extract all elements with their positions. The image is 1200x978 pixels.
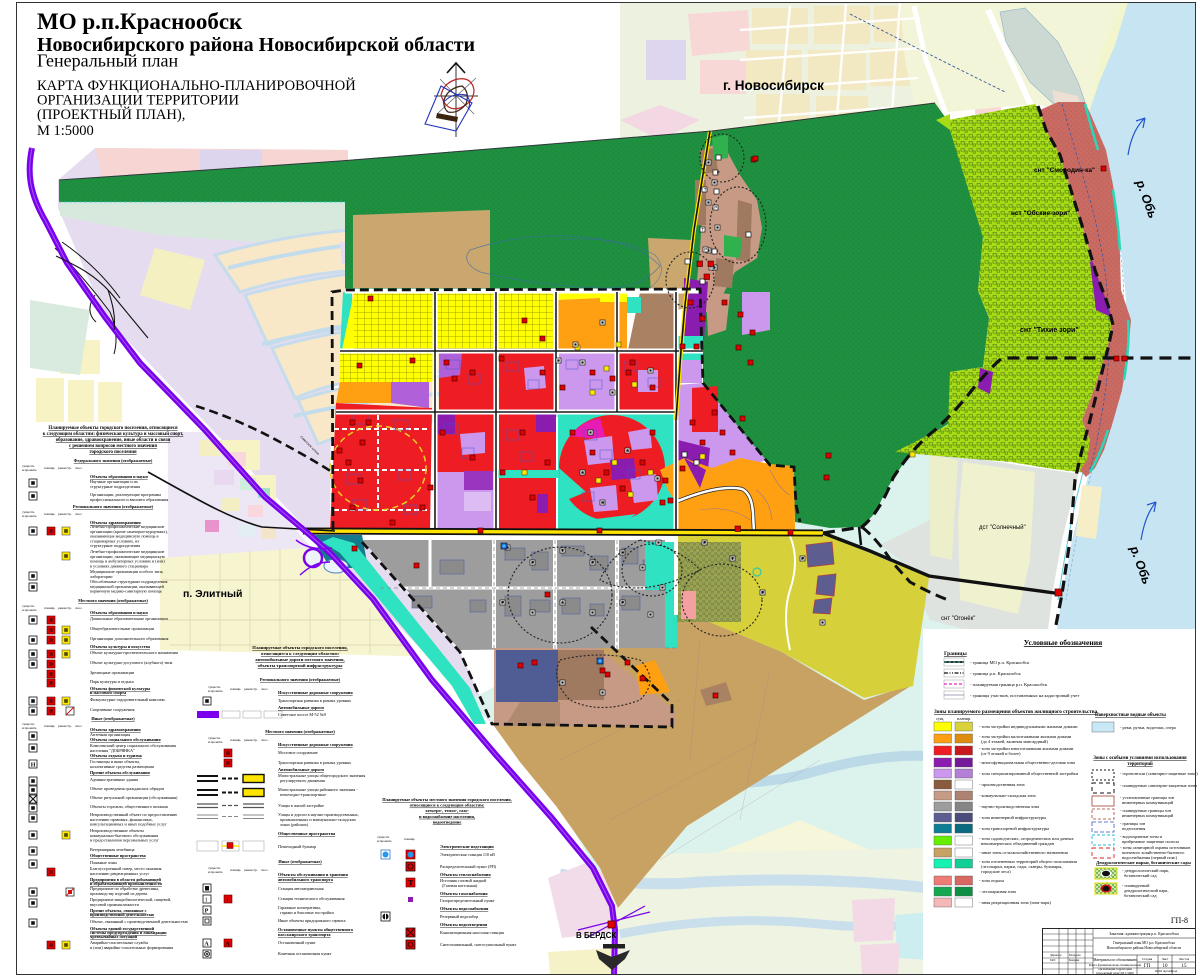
svg-text:Зоны планируемого размещения о: Зоны планируемого размещения объектов жи… xyxy=(934,708,1098,715)
svg-text:планир.: планир. xyxy=(44,512,55,516)
svg-text:снт "Огонёк": снт "Огонёк" xyxy=(941,616,975,622)
svg-text:Улицы в жилой застройке: Улицы в жилой застройке xyxy=(278,803,324,808)
svg-text:Объекты водоснабжения: Объекты водоснабжения xyxy=(440,906,489,911)
svg-text:Электрические подстанции: Электрические подстанции xyxy=(440,844,494,849)
svg-text:регулируемого движения: регулируемого движения xyxy=(280,778,325,783)
svg-text:Зоны с особыми условиями испол: Зоны с особыми условиями использования xyxy=(1093,756,1187,761)
svg-text:профессионального и высшего об: профессионального и высшего образования xyxy=(90,497,168,502)
svg-text:ботанический сад: ботанический сад xyxy=(1124,893,1157,898)
svg-text:А: А xyxy=(581,470,584,475)
svg-text:зонах (районах): зонах (районах) xyxy=(280,822,309,827)
svg-text:автомобильные дороги местного: автомобильные дороги местного значения, xyxy=(255,657,344,662)
svg-text:Объекты отдыха и туризма: Объекты отдыха и туризма xyxy=(90,753,143,758)
svg-text:М 1:5000: М 1:5000 xyxy=(37,123,94,139)
svg-text:снт "Смородин-ка": снт "Смородин-ка" xyxy=(1034,167,1095,174)
svg-text:15: 15 xyxy=(1182,964,1188,969)
svg-text:Искусственные дорожные сооруже: Искусственные дорожные сооружения xyxy=(278,690,353,695)
svg-text:Н: Н xyxy=(601,500,604,505)
svg-text:Станция технического обслужива: Станция технического обслуживания xyxy=(278,896,345,901)
svg-text:Р: Р xyxy=(621,600,624,605)
svg-text:Автомобильные дороги: Автомобильные дороги xyxy=(278,767,324,772)
svg-text:(от 9 этажей и более): (от 9 этажей и более) xyxy=(981,751,1021,756)
svg-text:- лесопарковая зона: - лесопарковая зона xyxy=(979,889,1016,894)
svg-text:Пешеходный бульвар: Пешеходный бульвар xyxy=(278,844,316,849)
svg-text:Объекты культуры и искусства: Объекты культуры и искусства xyxy=(90,644,151,649)
svg-text:Н: Н xyxy=(621,550,624,555)
svg-text:М: М xyxy=(710,265,714,270)
svg-text:объекты транспортной инфрастру: объекты транспортной инфраструктуры xyxy=(258,663,343,668)
svg-text:Канализационная насосная станц: Канализационная насосная станция xyxy=(440,930,504,935)
svg-text:и проектн.: и проектн. xyxy=(22,514,37,518)
svg-text:1: 1 xyxy=(205,898,208,904)
svg-text:Иные (отображаемые): Иные (отображаемые) xyxy=(91,716,135,721)
svg-text:прибрежные защитные полосы: прибрежные защитные полосы xyxy=(1122,839,1179,844)
svg-text:Генеральный план: Генеральный план xyxy=(37,51,178,71)
svg-text:КАРТА ФУНКЦИОНАЛЬНО-ПЛАНИРОВОЧ: КАРТА ФУНКЦИОНАЛЬНО-ПЛАНИРОВОЧНОЙ xyxy=(37,77,356,94)
svg-text:Конечная остановочная пункт: Конечная остановочная пункт xyxy=(278,951,332,956)
svg-text:ГП: ГП xyxy=(1144,964,1151,969)
svg-text:г. Новосибирск: г. Новосибирск xyxy=(723,78,824,93)
svg-text:пассажирского транспорта: пассажирского транспорта xyxy=(278,932,331,937)
svg-text:МО р.п.Краснообск: МО р.п.Краснообск xyxy=(37,9,243,34)
svg-text:- зона транспортной инфраструк: - зона транспортной инфраструктуры xyxy=(979,826,1049,831)
svg-text:H: H xyxy=(31,763,36,769)
svg-text:сущ.: сущ. xyxy=(936,716,944,721)
svg-text:Планируемые объекты местного з: Планируемые объекты местного значения го… xyxy=(382,797,512,802)
svg-text:территорий: территорий xyxy=(1127,762,1153,767)
svg-text:Объекты водоотведения: Объекты водоотведения xyxy=(440,922,488,927)
svg-text:структурные подразделения: структурные подразделения xyxy=(90,484,140,489)
svg-text:Р: Р xyxy=(501,600,504,605)
svg-text:чрезвычайных ситуаций: чрезвычайных ситуаций xyxy=(90,934,138,939)
svg-text:(Газовая котельная): (Газовая котельная) xyxy=(442,883,478,888)
svg-text:и проектн.: и проектн. xyxy=(22,468,37,472)
svg-text:снос.: снос. xyxy=(75,466,83,470)
svg-text:планир.: планир. xyxy=(230,868,241,872)
svg-text:- многофункциональная обществе: - многофункциональная общественно-делова… xyxy=(979,760,1075,765)
svg-text:Поверхностные водные объекты: Поверхностные водные объекты xyxy=(1095,713,1166,718)
svg-text:Прочие объекты обслуживания: Прочие объекты обслуживания xyxy=(90,770,150,775)
svg-text:Резервный водозабор: Резервный водозабор xyxy=(440,914,478,919)
svg-text:Иные объекты придорожного серв: Иные объекты придорожного сервиса xyxy=(278,918,346,923)
svg-text:образование, здравоохранение,: образование, здравоохранение, иные облас… xyxy=(56,438,171,443)
svg-text:Транспортная развязка в разных: Транспортная развязка в разных уровнях xyxy=(278,760,352,765)
svg-text:и проектн.: и проектн. xyxy=(208,870,223,874)
svg-text:A: A xyxy=(204,942,209,948)
svg-text:пешеходно-транспортные: пешеходно-транспортные xyxy=(280,792,326,797)
svg-text:снт "Тихие зори": снт "Тихие зори" xyxy=(1020,327,1079,334)
svg-text:к следующим областям: физическ: к следующим областям: физическая культур… xyxy=(43,432,184,437)
svg-text:Р: Р xyxy=(761,590,764,595)
svg-text:Планируемые объекты городског: Планируемые объекты городского поселения… xyxy=(48,426,178,431)
svg-text:Искусственные дорожные сооруже: Искусственные дорожные сооружения xyxy=(278,742,353,747)
svg-text:производству изделий из дерева: производству изделий из дерева xyxy=(90,891,147,896)
svg-text:А: А xyxy=(561,600,564,605)
svg-text:ГАП: ГАП xyxy=(1050,959,1055,962)
svg-text:Объект культурно-просветительс: Объект культурно-просветительского назна… xyxy=(90,650,178,655)
svg-text:- зона застройки индивидуальны: - зона застройки индивидуальными жилыми … xyxy=(979,724,1078,729)
svg-text:- зона отдыха: - зона отдыха xyxy=(979,878,1004,883)
svg-text:Генеральный план МО р.п. Красн: Генеральный план МО р.п. Краснообска xyxy=(1113,941,1175,945)
svg-text:1: 1 xyxy=(226,898,229,904)
svg-text:Бандман: Бандман xyxy=(1069,959,1080,962)
svg-text:Организации дополнительного об: Организации дополнительного образования xyxy=(90,636,168,641)
svg-text:- планируемые санитарно-защитн: - планируемые санитарно-защитные зоны xyxy=(1120,783,1197,788)
svg-text:и массового спорта: и массового спорта xyxy=(90,690,127,695)
svg-text:и водоснабжение населения,: и водоснабжение населения, xyxy=(419,814,475,819)
svg-text:Р: Р xyxy=(531,560,534,565)
svg-text:Станция автозаправочная: Станция автозаправочная xyxy=(278,886,324,891)
svg-text:Т: Т xyxy=(701,227,704,232)
svg-text:- научно-производственная зона: - научно-производственная зона xyxy=(979,804,1039,809)
svg-text:Т: Т xyxy=(704,187,707,192)
svg-text:Транспортная развязка в разных: Транспортная развязка в разных уровнях xyxy=(278,698,352,703)
svg-text:п. Элитный: п. Элитный xyxy=(183,588,242,600)
svg-text:Р: Р xyxy=(714,205,717,210)
svg-text:Федерального значения (отображ: Федерального значения (отображаемые) xyxy=(74,458,153,463)
svg-text:ГП-8: ГП-8 xyxy=(1171,916,1188,925)
svg-text:и (или) аварийно-спасательные: и (или) аварийно-спасательные формирован… xyxy=(90,945,173,950)
svg-text:Общеобразовательные организаци: Общеобразовательные организации xyxy=(90,626,155,631)
svg-text:Парк культуры и отдыха: Парк культуры и отдыха xyxy=(90,679,134,684)
svg-text:реконстр.: реконстр. xyxy=(244,868,258,872)
svg-text:- иные зоны сельскохозяйственн: - иные зоны сельскохозяйственного назнач… xyxy=(979,850,1068,855)
svg-text:В БЕРДСК: В БЕРДСК xyxy=(576,931,616,940)
svg-text:коллективные средства размещен: коллективные средства размещения xyxy=(90,764,154,769)
svg-text:Дошкольные образовательные орг: Дошкольные образовательные организации xyxy=(90,616,168,621)
svg-text:А: А xyxy=(626,448,629,453)
svg-text:и предоставления персональных: и предоставления персональных услуг xyxy=(90,838,159,843)
svg-text:городского поселения: городского поселения xyxy=(89,450,137,455)
svg-text:планир.: планир. xyxy=(44,724,55,728)
svg-text:- производственная зона: - производственная зона xyxy=(979,782,1025,787)
svg-text:некоммерческих объединений гра: некоммерческих объединений граждан xyxy=(981,841,1055,846)
svg-text:Директор: Директор xyxy=(1050,954,1062,957)
svg-text:Объекты образования и науки: Объекты образования и науки xyxy=(90,610,148,615)
svg-text:снос.: снос. xyxy=(75,724,83,728)
svg-text:Р: Р xyxy=(703,540,706,545)
svg-text:Иные (отображаемые): Иные (отображаемые) xyxy=(278,859,322,864)
svg-text:консультационных и иных подобн: консультационных и иных подобных услуг xyxy=(90,822,167,827)
svg-text:гаражи и боксовые постройки: гаражи и боксовые постройки xyxy=(280,910,334,915)
svg-text:Дендрологические парки, ботани: Дендрологические парки, ботанические сад… xyxy=(1096,860,1191,865)
svg-text:дст "Солнечный": дст "Солнечный" xyxy=(979,524,1026,531)
svg-text:планир.: планир. xyxy=(404,837,415,841)
svg-text:снос.: снос. xyxy=(75,606,83,610)
svg-text:планир.: планир. xyxy=(44,466,55,470)
svg-text:водоотведение: водоотведение xyxy=(433,819,462,824)
svg-text:Объект культурно-досугового (к: Объект культурно-досугового (клубного) т… xyxy=(90,660,173,665)
svg-text:- коммунально-складская зона: - коммунально-складская зона xyxy=(979,793,1036,798)
svg-text:Местного значения (отображаемы: Местного значения (отображаемые) xyxy=(78,598,148,603)
svg-text:Регионального значения (отобра: Регионального значения (отображаемые) xyxy=(260,677,341,682)
svg-text:в условиях дневного стационара: в условиях дневного стационара xyxy=(90,563,148,568)
svg-text:населению рекреационных услуг: населению рекреационных услуг xyxy=(90,871,149,876)
svg-text:Административные здания: Административные здания xyxy=(90,777,138,782)
svg-text:Объекты газоснабжения: Объекты газоснабжения xyxy=(440,891,488,896)
svg-text:нст "Обские-зори": нст "Обские-зори" xyxy=(1011,209,1070,217)
svg-text:и проектн.: и проектн. xyxy=(208,740,223,744)
svg-text:и проектн.: и проектн. xyxy=(22,726,37,730)
svg-text:Мостовое сооружение: Мостовое сооружение xyxy=(278,750,318,755)
svg-text:- зона специализированной обще: - зона специализированной общественной з… xyxy=(979,771,1079,776)
svg-text:автомобильного транспорта: автомобильного транспорта xyxy=(278,877,334,882)
svg-text:Листов: Листов xyxy=(1179,957,1190,961)
svg-text:Местного значения (отображаемы: Местного значения (отображаемые) xyxy=(265,729,335,734)
svg-text:городские леса): городские леса) xyxy=(981,869,1011,874)
svg-text:Общественные пространства: Общественные пространства xyxy=(90,853,147,858)
svg-text:Р: Р xyxy=(801,556,804,561)
svg-text:Физкультурно-оздоровительный к: Физкультурно-оздоровительный комплекс xyxy=(90,697,166,702)
svg-text:Распределительный пункт (РП): Распределительный пункт (РП) xyxy=(440,864,497,869)
svg-text:реконстр.: реконстр. xyxy=(58,724,72,728)
svg-text:структурные подразделения: структурные подразделения xyxy=(90,543,140,548)
svg-text:T: T xyxy=(408,879,413,887)
svg-text:Р: Р xyxy=(717,170,720,175)
svg-text:- горизонтали (санитарно-защит: - горизонтали (санитарно-защитные зоны) xyxy=(1120,771,1198,776)
svg-text:Электрическая станция 110 кВ: Электрическая станция 110 кВ xyxy=(440,852,495,857)
svg-text:снос.: снос. xyxy=(261,687,269,691)
svg-text:Зрелищные организации: Зрелищные организации xyxy=(90,670,135,675)
svg-text:Регионального значения (отобра: Регионального значения (отображаемые) xyxy=(73,504,154,509)
svg-text:Лист: Лист xyxy=(1161,957,1169,961)
svg-text:Автомобильные дороги: Автомобильные дороги xyxy=(278,705,324,710)
svg-text:P: P xyxy=(205,909,209,915)
svg-text:- граница МО р.п. Краснообск: - граница МО р.п. Краснообск xyxy=(970,660,1030,665)
svg-text:снос.: снос. xyxy=(261,868,269,872)
svg-text:Ветеринарная лечебница: Ветеринарная лечебница xyxy=(90,847,135,852)
svg-text:реконстр.: реконстр. xyxy=(244,738,258,742)
svg-text:Объекты социального обслуживан: Объекты социального обслуживания xyxy=(90,737,161,742)
svg-text:снос.: снос. xyxy=(261,738,269,742)
svg-text:- планируемая граница р.п. Кра: - планируемая граница р.п. Краснообск xyxy=(970,682,1048,687)
svg-text:Р: Р xyxy=(704,247,707,252)
svg-text:реконстр.: реконстр. xyxy=(244,687,258,691)
svg-text:снос.: снос. xyxy=(75,512,83,516)
svg-text:и проектн.: и проектн. xyxy=(377,839,392,843)
svg-text:реконстр.: реконстр. xyxy=(58,606,72,610)
svg-text:относящиеся к следующим област: относящиеся к следующим областям: xyxy=(261,651,340,656)
svg-text:Условные обозначения: Условные обозначения xyxy=(1024,638,1102,647)
svg-text:Заказчик: администрация р.п. К: Заказчик: администрация р.п. Краснообска xyxy=(1109,932,1179,936)
svg-text:- граница р.п. Краснообск: - граница р.п. Краснообск xyxy=(970,671,1022,676)
svg-text:Т: Т xyxy=(561,548,564,553)
svg-text:подтопления: подтопления xyxy=(1122,826,1145,831)
svg-text:Остановочный пункт: Остановочный пункт xyxy=(278,940,316,945)
svg-text:- иная рекреационная зона (зон: - иная рекреационная зона (зона-парк) xyxy=(979,900,1051,905)
svg-text:Т: Т xyxy=(731,556,734,561)
svg-text:Р: Р xyxy=(591,560,594,565)
svg-text:Советское шоссе М-52 №9: Советское шоссе М-52 №9 xyxy=(278,712,326,717)
svg-text:планир.: планир. xyxy=(230,738,241,742)
svg-text:ботанический сад: ботанический сад xyxy=(1124,873,1157,878)
svg-text:Границы: Границы xyxy=(944,651,967,657)
svg-text:относящиеся к следующим област: относящиеся к следующим областям: xyxy=(410,803,485,808)
svg-text:с решением вопросов местного з: с решением вопросов местного значения xyxy=(69,444,157,449)
svg-text:первичную медико-санитарную по: первичную медико-санитарную помощь xyxy=(90,589,162,594)
svg-text:Новосибирского района Новосиби: Новосибирского района Новосибирской обла… xyxy=(1107,946,1181,950)
svg-text:- зона инженерной инфраструкту: - зона инженерной инфраструктуры xyxy=(979,815,1046,820)
svg-text:Пляжные зоны: Пляжные зоны xyxy=(90,860,117,865)
svg-text:планир.: планир. xyxy=(44,606,55,610)
svg-text:Объект ритуальной организации: Объект ритуальной организации (обслужива… xyxy=(90,795,178,800)
svg-text:Спортивные сооружения: Спортивные сооружения xyxy=(90,707,134,712)
svg-text:A: A xyxy=(225,942,230,948)
svg-text:электро-, тепло-, газо-: электро-, тепло-, газо- xyxy=(425,808,469,813)
svg-text:Объект проведения гражданских: Объект проведения гражданских обрядов xyxy=(90,786,164,791)
svg-text:инженерных коммуникаций: инженерных коммуникаций xyxy=(1122,800,1174,805)
svg-text:Мазурова: Мазурова xyxy=(1069,954,1081,957)
svg-text:Материалы по обоснованию: Материалы по обоснованию xyxy=(1093,958,1137,962)
svg-text:(ПРОЕКТНЫЙ ПЛАН),: (ПРОЕКТНЫЙ ПЛАН), xyxy=(37,106,185,123)
svg-text:вкусовой промышленности: вкусовой промышленности xyxy=(90,902,140,907)
svg-text:производственной деятельностью: производственной деятельностью xyxy=(90,912,155,917)
svg-text:ООО АрхиГрад: ООО АрхиГрад xyxy=(1155,969,1178,973)
svg-text:и проектн.: и проектн. xyxy=(22,608,37,612)
svg-text:Газораспределительный пункт: Газораспределительный пункт xyxy=(440,898,495,903)
svg-text:Общественные пространства: Общественные пространства xyxy=(278,831,336,836)
svg-text:и проектн.: и проектн. xyxy=(208,689,223,693)
svg-text:Планируемые объекты городског: Планируемые объекты городского поселения… xyxy=(252,645,347,650)
svg-text:планир.: планир. xyxy=(957,716,971,721)
svg-text:Стадия: Стадия xyxy=(1142,957,1153,961)
svg-text:реконстр.: реконстр. xyxy=(58,512,72,516)
svg-text:планир.: планир. xyxy=(230,687,241,691)
svg-text:инженерных коммуникаций: инженерных коммуникаций xyxy=(1122,813,1174,818)
svg-text:реконстр.: реконстр. xyxy=(58,466,72,470)
svg-text:Объекты теплоснабжения: Объекты теплоснабжения xyxy=(440,872,491,877)
